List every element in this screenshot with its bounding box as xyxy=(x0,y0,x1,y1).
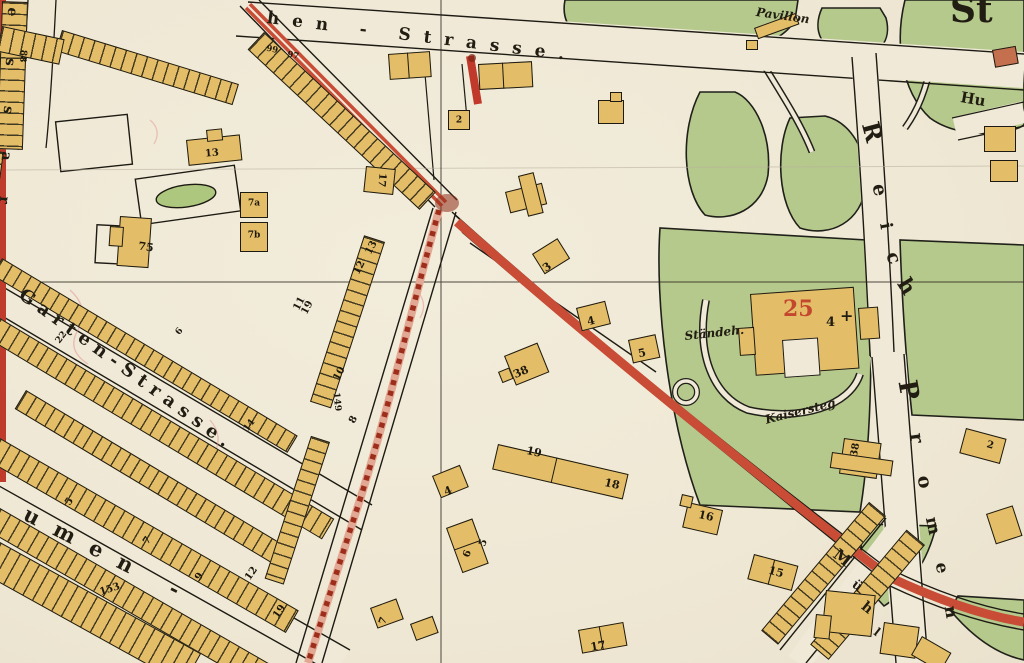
building xyxy=(782,337,821,377)
map-letter: s xyxy=(3,57,18,66)
house-number: 149 xyxy=(331,392,342,412)
building xyxy=(388,51,432,80)
house-number: 7a xyxy=(248,200,260,209)
house-number: 13 xyxy=(205,148,220,159)
house-number: 17 xyxy=(375,173,386,188)
house-number: 19 xyxy=(525,445,542,459)
house-number: 75 xyxy=(138,240,155,253)
building xyxy=(858,307,880,340)
building-divider xyxy=(407,53,410,79)
building xyxy=(813,614,831,640)
house-number: 2 xyxy=(456,117,462,126)
building xyxy=(990,160,1018,182)
house-number: 16 xyxy=(697,509,714,523)
building xyxy=(746,40,758,50)
building xyxy=(984,126,1016,152)
house-number: 17 xyxy=(590,639,607,652)
place-label: 4 xyxy=(826,316,835,329)
house-number: 7b xyxy=(248,232,261,241)
building xyxy=(478,61,533,90)
map-letter: e xyxy=(5,7,20,17)
map-letter: m xyxy=(922,515,942,536)
building xyxy=(610,92,622,102)
house-number: 97 xyxy=(286,51,299,62)
house-number: 88 xyxy=(17,49,27,62)
map-canvas: hen - Strasse.Garten-Strasse.umen -Pavil… xyxy=(0,0,1024,663)
building xyxy=(598,100,624,124)
place-label: St xyxy=(950,0,993,28)
house-number: 15 xyxy=(767,565,785,580)
building xyxy=(206,128,223,142)
building xyxy=(109,226,124,247)
map-letter: a xyxy=(0,151,13,161)
map-letter: r xyxy=(0,196,11,205)
house-number: 99 xyxy=(265,45,278,56)
place-label: 25 xyxy=(783,298,814,320)
building-divider xyxy=(502,63,504,89)
map-letter: s xyxy=(1,105,16,114)
house-number: 18 xyxy=(603,477,620,491)
building-divider xyxy=(551,458,558,484)
place-label: + xyxy=(840,308,853,324)
place-label: Hu xyxy=(959,90,986,109)
